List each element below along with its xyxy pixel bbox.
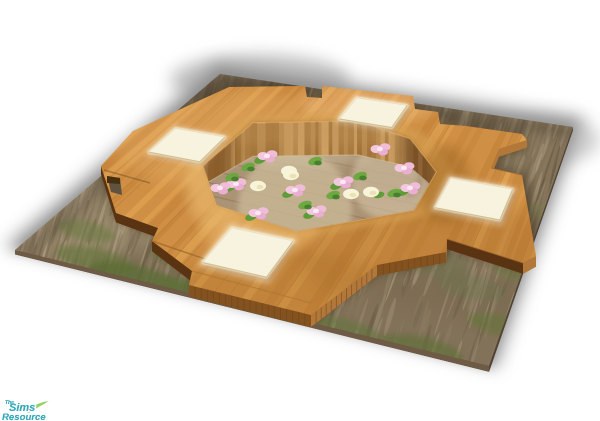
svg-text:Resource: Resource: [2, 412, 46, 421]
svg-text:The: The: [5, 400, 14, 406]
